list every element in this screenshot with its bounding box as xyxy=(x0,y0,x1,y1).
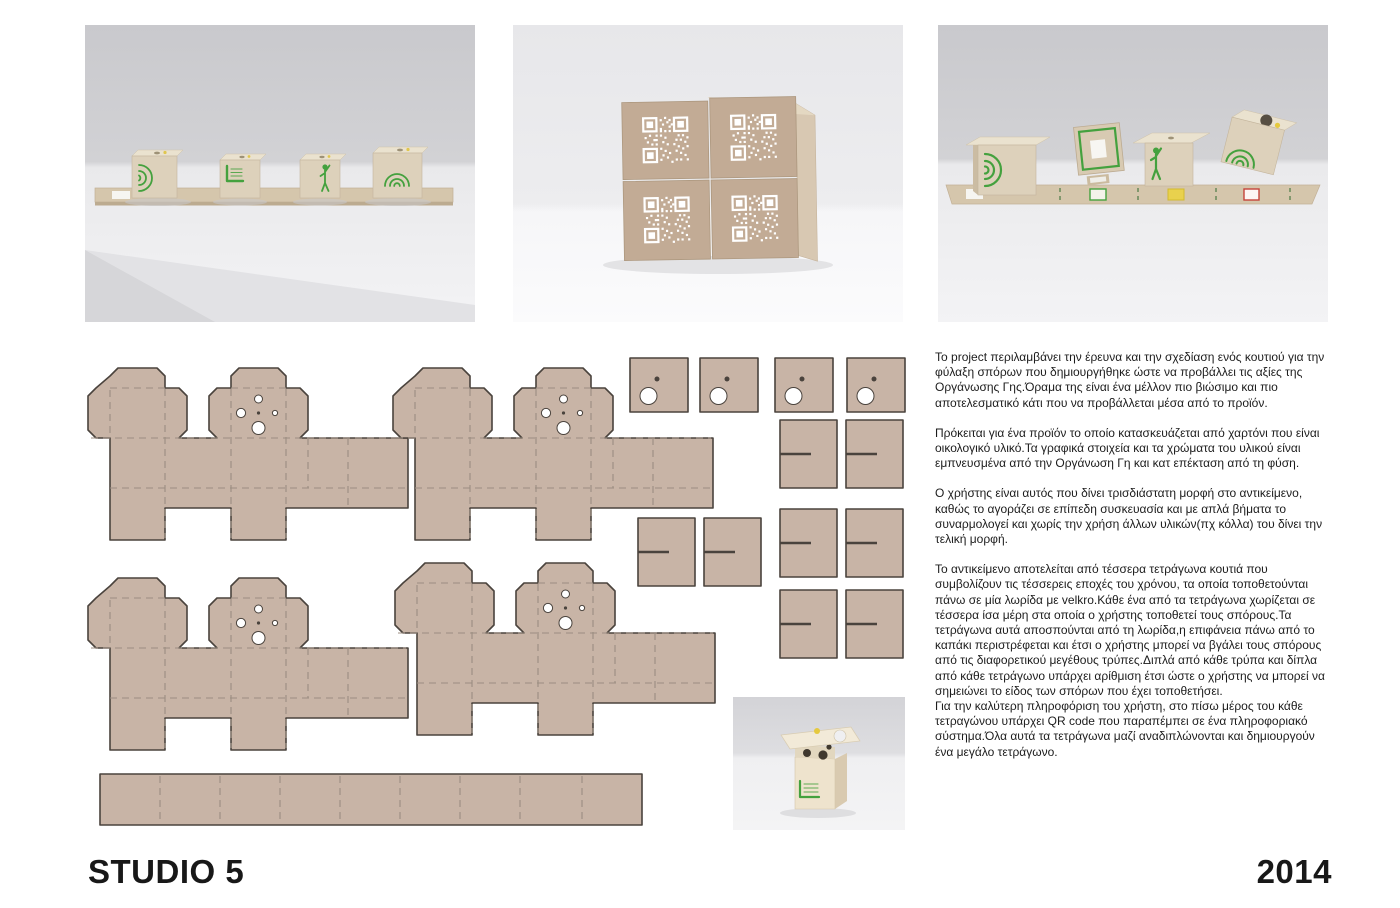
project-description: Το project περιλαμβάνει την έρευνα και τ… xyxy=(935,350,1333,760)
description-paragraph: Πρόκειται για ένα προϊόν το οποίο κατασκ… xyxy=(935,426,1333,472)
divider xyxy=(704,518,761,586)
box-net-3 xyxy=(88,578,408,750)
description-paragraph: Για την καλύτερη πληροφόριση του χρήστη,… xyxy=(935,699,1333,760)
seed xyxy=(814,728,820,734)
divider xyxy=(780,590,837,658)
lid-hole xyxy=(834,730,846,742)
box-net-4 xyxy=(395,563,715,735)
box-net-1 xyxy=(88,368,408,540)
lid-2 xyxy=(700,358,758,412)
lid-3 xyxy=(775,358,833,412)
presentation-board: Το project περιλαμβάνει την έρευνα και τ… xyxy=(0,0,1400,908)
lid-1 xyxy=(630,358,688,412)
divider xyxy=(780,509,837,577)
description-paragraph: Το αντικείμενο αποτελείται από τέσσερα τ… xyxy=(935,562,1333,699)
divider xyxy=(846,590,903,658)
lid-4 xyxy=(847,358,905,412)
photo-open-box xyxy=(733,697,905,830)
velcro-strip-dieline xyxy=(100,774,642,825)
description-paragraph: Το project περιλαμβάνει την έρευνα και τ… xyxy=(935,350,1333,411)
studio-title: STUDIO 5 xyxy=(88,853,244,891)
divider xyxy=(846,420,903,488)
description-paragraph: Ο χρήστης είναι αυτός που δίνει τρισδιάσ… xyxy=(935,486,1333,547)
divider xyxy=(846,509,903,577)
divider xyxy=(638,518,695,586)
divider xyxy=(780,420,837,488)
year-label: 2014 xyxy=(1257,853,1332,891)
